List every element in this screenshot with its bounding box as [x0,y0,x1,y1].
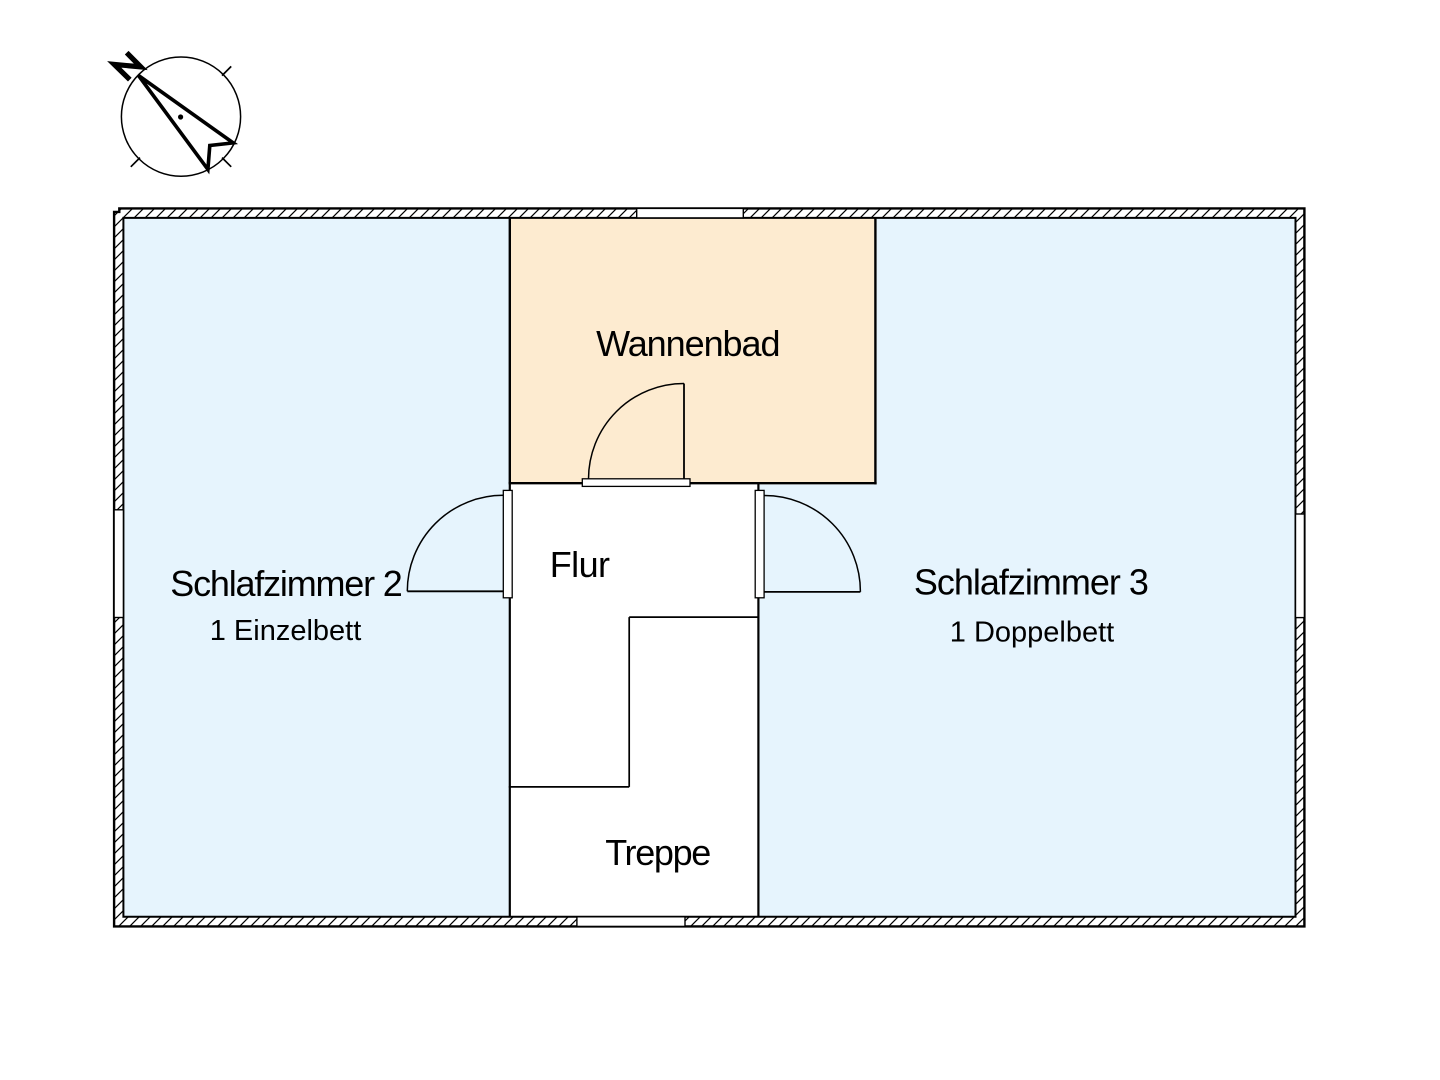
svg-text:1 Doppelbett: 1 Doppelbett [950,617,1114,649]
svg-text:Wannenbad: Wannenbad [596,323,779,364]
svg-text:1 Einzelbett: 1 Einzelbett [210,615,362,647]
svg-text:Schlafzimmer 3: Schlafzimmer 3 [914,562,1148,603]
svg-text:Treppe: Treppe [605,832,710,873]
svg-text:Schlafzimmer 2: Schlafzimmer 2 [170,563,401,604]
svg-text:Flur: Flur [550,544,610,585]
